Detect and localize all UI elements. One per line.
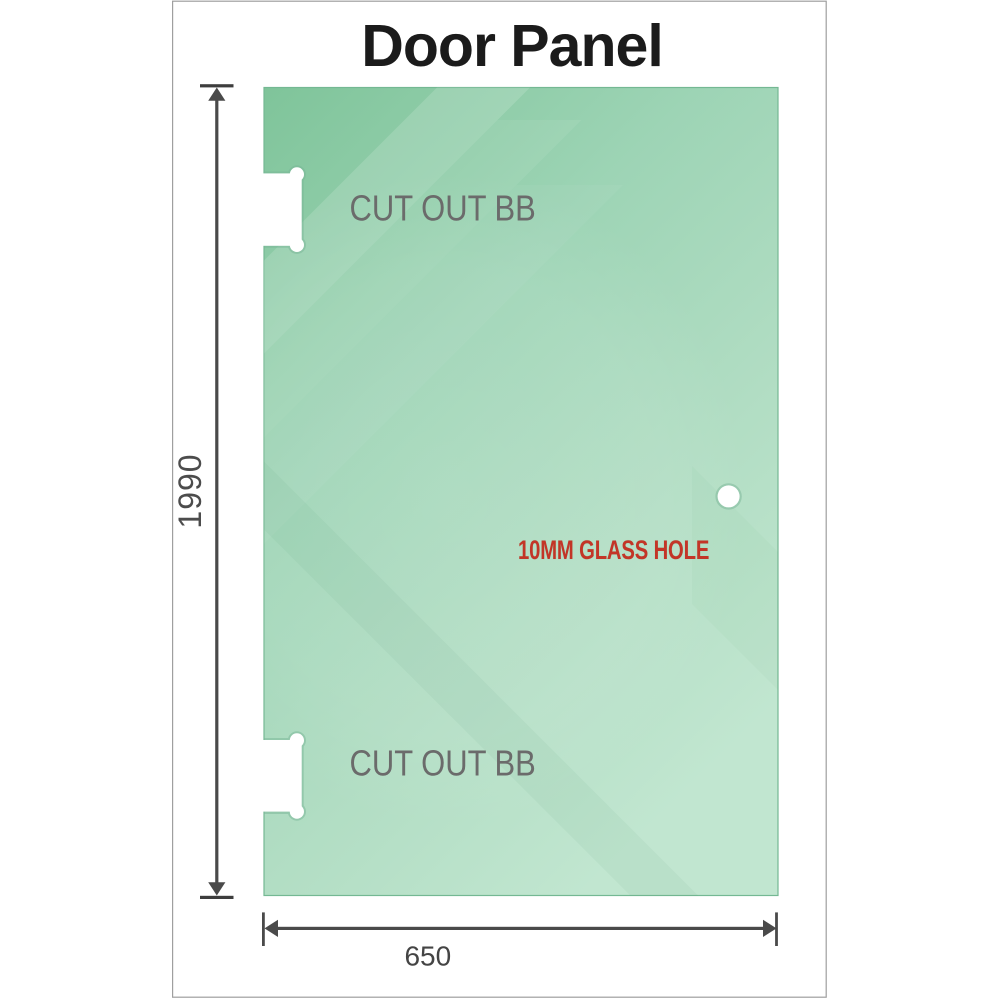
svg-text:CUT OUT BB: CUT OUT BB bbox=[350, 744, 536, 784]
svg-text:10MM GLASS HOLE: 10MM GLASS HOLE bbox=[518, 535, 709, 566]
svg-text:Door Panel: Door Panel bbox=[361, 13, 662, 79]
svg-text:CUT OUT BB: CUT OUT BB bbox=[350, 189, 536, 229]
svg-text:1990: 1990 bbox=[172, 453, 208, 528]
svg-text:650: 650 bbox=[404, 941, 451, 972]
